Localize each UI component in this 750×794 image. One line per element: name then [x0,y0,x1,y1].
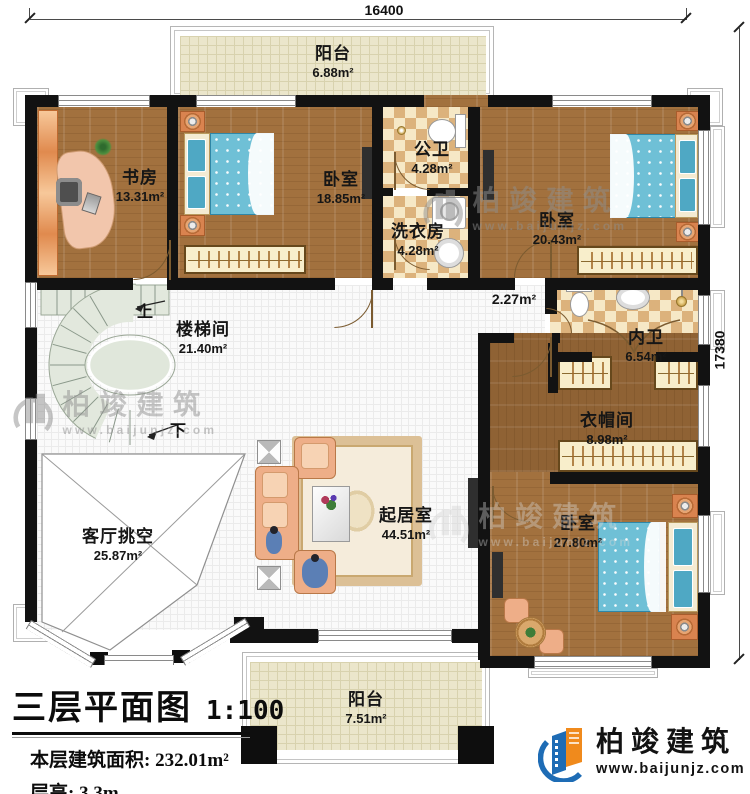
dimension-height: 17380 [711,331,727,370]
room-name: 阳台 [345,690,386,710]
window [698,385,710,447]
wall [550,472,698,484]
room-area: 4.28m² [397,243,438,258]
room-name: 起居室 [379,506,433,526]
watermark: 柏竣建筑 www.baijunjz.com [421,184,627,236]
bay-window [104,655,174,665]
watermark-url: www.baijunjz.com [472,219,627,233]
room-name: 内卫 [625,328,666,348]
bookshelf [38,110,58,276]
door-leaf [371,290,373,328]
room-label-cloakroom: 衣帽间 8.98m² [580,411,634,449]
sofa-cushion [262,502,288,528]
dimension-line-right [739,28,740,660]
wardrobe [577,246,698,275]
armchair-cushion [301,443,329,469]
room-area: 8.98m² [586,432,627,447]
room-area: 21.40m² [179,341,227,356]
balcony-door-threshold [424,95,488,107]
room-name: 阳台 [312,44,353,64]
wall [480,278,515,290]
pillow [679,140,696,174]
door-leaf [394,152,396,190]
room-label-living-void: 客厅挑空 25.87m² [82,527,154,565]
window [698,130,710,225]
column [458,726,494,764]
room-area: 6.54m² [625,349,666,364]
wall [652,656,710,668]
logo-icon [538,722,586,782]
watermark-brand: 柏竣建筑 [472,187,627,215]
room-area: 6.88m² [312,65,353,80]
area-value: 232.01m² [155,750,229,771]
side-table [257,440,281,464]
window [318,630,452,642]
room-name: 卧室 [317,170,365,190]
pillow [187,176,206,209]
spiral-staircase [37,283,217,478]
window-sill [710,126,725,228]
room-area: 44.51m² [382,527,430,542]
nightstand [180,111,205,132]
company-logo: 柏竣建筑 www.baijunjz.com [538,722,745,782]
wardrobe [184,245,306,274]
window [25,282,37,328]
room-label-balcony-top: 阳台 6.88m² [312,44,353,82]
title-underline [12,732,250,735]
plan-title: 三层平面图 [12,680,192,729]
window [698,295,710,345]
room-label-bedroom-top: 卧室 18.85m² [317,170,365,208]
logo-url: www.baijunjz.com [596,761,745,777]
wall [25,278,133,290]
watermark-icon [427,500,469,552]
dimension-tick [24,12,35,23]
wall [552,333,560,343]
wall [25,95,37,622]
room-name: 衣帽间 [580,411,634,431]
person-figure [266,530,282,554]
window [58,95,150,107]
room-label-study: 书房 13.31m² [116,168,164,206]
title-block: 三层平面图 1:100 本层建筑面积: 232.01m² 层高: 3.3m [12,680,284,794]
stairs-up-label: 上 [137,298,153,322]
pillow [679,178,696,212]
window [196,95,296,107]
watermark-brand: 柏竣建筑 [62,391,217,419]
toilet-tank [455,114,466,148]
nightstand [676,111,699,131]
title-underline-thin [12,737,250,738]
plant [94,138,112,156]
room-label-ensuite: 内卫 6.54m² [625,328,666,366]
wall [167,278,335,290]
door-leaf [550,337,552,377]
plan-scale: 1:100 [206,696,284,726]
height-value: 3.3m [79,783,119,794]
office-chair [56,178,82,206]
watermark-icon [11,388,53,440]
window [534,656,652,668]
round-table [515,617,546,648]
room-name: 公卫 [411,140,452,160]
area-label: 本层建筑面积: [30,750,150,771]
wall [553,278,698,290]
room-name: 客厅挑空 [82,527,154,547]
room-area: 2.27m² [492,291,536,307]
flowers [318,492,342,512]
window [698,515,710,593]
logo-brand: 柏竣建筑 [596,728,745,756]
room-label-corridor: 2.27m² [492,291,536,307]
room-area: 7.51m² [345,711,386,726]
wall [383,278,393,290]
dimension-width: 16400 [365,2,404,18]
shower-head [676,296,687,307]
wall [427,278,470,290]
wall [383,188,393,196]
room-label-stairwell: 楼梯间 21.40m² [176,320,230,358]
side-table [257,566,281,590]
room-label-living-room: 起居室 44.51m² [379,506,433,544]
floor-drain [397,126,406,135]
watermark-brand: 柏竣建筑 [478,503,633,531]
pillow [673,528,693,566]
pillow [673,570,693,608]
wall [452,629,478,643]
watermark-icon [421,184,463,236]
wall [230,629,318,643]
dimension-line-top [30,19,687,20]
room-area: 13.31m² [116,189,164,204]
window-sill [528,668,658,678]
room-name: 楼梯间 [176,320,230,340]
room-area: 18.85m² [317,191,365,206]
room-name: 书房 [116,168,164,188]
watermark-url: www.baijunjz.com [62,423,217,437]
person-figure [302,558,328,588]
room-label-balcony-bottom: 阳台 7.51m² [345,690,386,728]
watermark-url: www.baijunjz.com [478,535,633,549]
watermark: 柏竣建筑 www.baijunjz.com [427,500,633,552]
pillow [187,139,206,172]
tv [492,552,503,598]
wall [372,95,383,290]
nightstand [672,494,698,518]
watermark: 柏竣建筑 www.baijunjz.com [11,388,217,440]
nightstand [180,215,205,236]
window-sill [710,511,725,595]
bed-blanket [248,133,274,215]
room-area: 25.87m² [94,548,142,563]
wall [478,333,490,660]
room-area: 4.28m² [411,161,452,176]
height-label: 层高: [30,783,74,794]
room-label-public-bath: 公卫 4.28m² [411,140,452,178]
floor-plan: 阳台 6.88m² 书房 13.31m² 卧室 18.85m² 公卫 4.28m… [0,0,750,794]
wall [478,333,514,343]
door-leaf [169,240,171,280]
bed-blanket [644,522,666,612]
window [552,95,652,107]
sofa-cushion [262,472,288,498]
nightstand [676,222,699,242]
wall [480,656,534,668]
nightstand [671,614,698,640]
